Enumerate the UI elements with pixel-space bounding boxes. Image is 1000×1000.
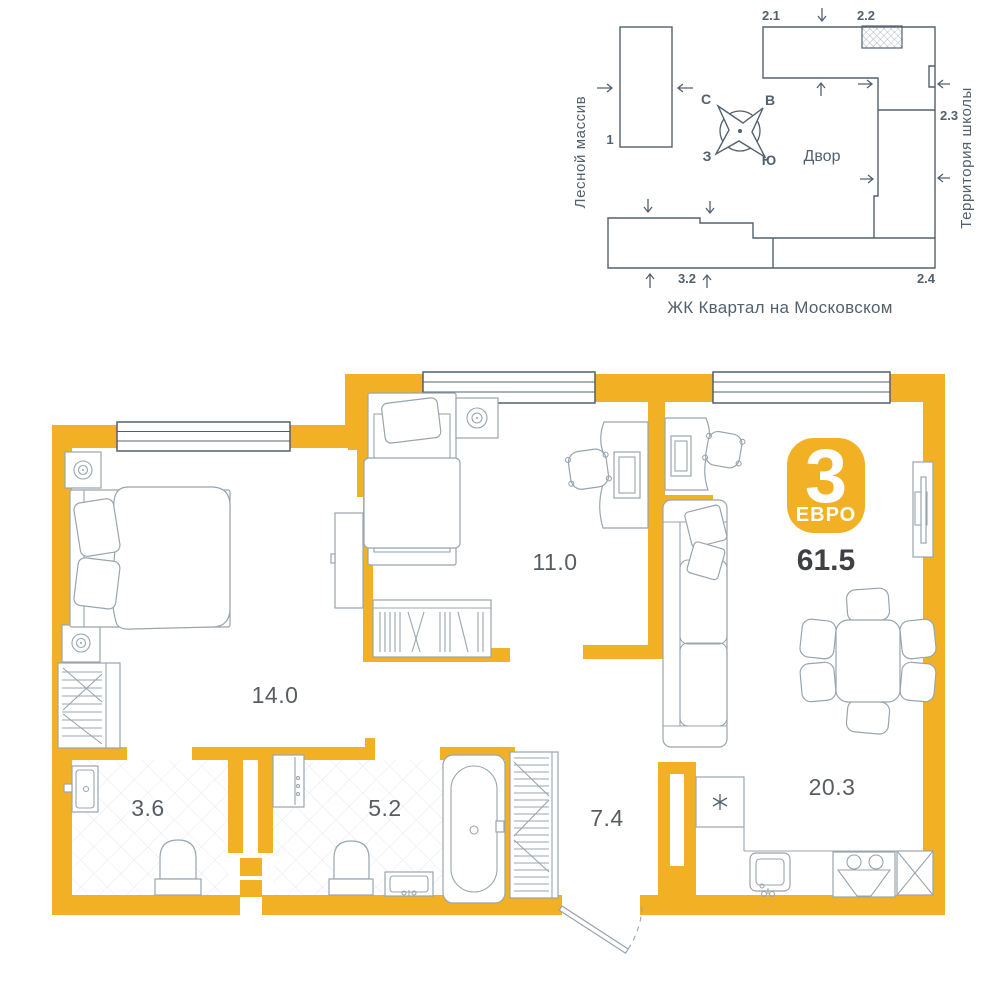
room-label-bathroom-large: 5.2 xyxy=(368,795,401,821)
building-label-2-4: 2.4 xyxy=(917,271,936,286)
school-label: Территория школы xyxy=(958,87,975,229)
pillow xyxy=(73,498,121,558)
courtyard-label: Двор xyxy=(804,148,841,165)
window-living xyxy=(713,372,890,403)
room-label-bedroom-second: 11.0 xyxy=(532,549,577,575)
toilet xyxy=(329,841,373,895)
windows xyxy=(117,372,890,451)
total-area-value: 61.5 xyxy=(797,544,855,577)
tv-unit xyxy=(913,462,933,557)
monitor xyxy=(614,452,640,498)
faucet xyxy=(64,784,72,792)
hallway-furniture xyxy=(510,752,642,953)
arrow-left-icon xyxy=(678,84,693,92)
building-label-3-2: 3.2 xyxy=(678,271,696,286)
apartment-plan: 14.0 11.0 3.6 5.2 7.4 20.3 3 ЕВРО 61.5 xyxy=(52,372,945,953)
pillow xyxy=(684,504,728,548)
arrow-up-icon xyxy=(703,275,711,288)
bedroom-second-furniture xyxy=(364,393,648,657)
floorplan-page: С В З Ю 1 2.1 2.2 2.3 2.4 3.2 Двор Лесно… xyxy=(0,0,1000,1000)
corner-cabinet xyxy=(897,851,933,895)
pillow xyxy=(381,397,441,444)
cabinet xyxy=(335,513,363,608)
site-building-3-2-2-4 xyxy=(608,218,935,268)
arrow-right-icon xyxy=(858,80,872,88)
chair xyxy=(799,662,836,703)
site-building-1 xyxy=(620,27,672,147)
bathtub-faucet xyxy=(496,821,504,832)
site-building-notch xyxy=(929,66,935,87)
arrow-left-icon xyxy=(938,174,950,182)
arrow-right-icon xyxy=(597,84,612,92)
kitchen-duct-column xyxy=(658,762,696,898)
tv-screen xyxy=(921,477,926,543)
site-building-2-1-2-2 xyxy=(763,27,935,110)
chair xyxy=(846,699,891,735)
building-label-2-1: 2.1 xyxy=(762,8,780,23)
window-bedroom xyxy=(117,422,290,451)
dresser xyxy=(373,600,491,657)
building-label-2-2: 2.2 xyxy=(857,8,875,23)
dining-table xyxy=(836,620,900,702)
arrow-down-icon xyxy=(644,199,652,212)
hall-wardrobe xyxy=(510,752,558,898)
site-building-2-3-left xyxy=(874,110,878,238)
compass-icon: С В З Ю xyxy=(701,91,776,168)
door-swing-arc xyxy=(628,906,642,949)
building-label-2-3: 2.3 xyxy=(940,108,958,123)
monitor xyxy=(671,436,691,476)
bedroom-main-furniture xyxy=(58,452,363,748)
entrance-door xyxy=(559,906,642,953)
forest-label: Лесной массив xyxy=(572,96,589,209)
apartment-type-badge: 3 ЕВРО 61.5 xyxy=(787,434,865,577)
compass-north: С xyxy=(701,91,711,107)
arrow-right-icon xyxy=(860,175,873,183)
cabinet-handle xyxy=(331,554,335,563)
chair xyxy=(899,662,936,703)
blanket xyxy=(364,458,460,548)
site-current-building-hatch xyxy=(862,26,902,48)
site-plan: С В З Ю 1 2.1 2.2 2.3 2.4 3.2 Двор Лесно… xyxy=(572,8,975,317)
pillow xyxy=(73,557,121,610)
dining-set xyxy=(799,588,937,735)
compass-east: В xyxy=(765,92,775,108)
arrow-left-icon xyxy=(938,80,950,88)
bathtub xyxy=(443,755,505,903)
room-label-kitchen-living: 20.3 xyxy=(809,774,856,800)
badge-type-label: ЕВРО xyxy=(796,504,856,526)
arrow-up-icon xyxy=(817,83,825,96)
sofa xyxy=(663,500,728,747)
chair xyxy=(846,588,890,623)
chair xyxy=(899,618,937,659)
wardrobe xyxy=(58,663,120,748)
washing-machine xyxy=(273,755,304,807)
duvet xyxy=(112,487,230,629)
complex-name: ЖК Квартал на Московском xyxy=(667,298,893,317)
chair xyxy=(799,618,837,659)
room-label-bathroom-small: 3.6 xyxy=(131,795,164,821)
arrow-down-icon xyxy=(706,201,714,213)
stove xyxy=(833,852,895,897)
room-label-bedroom-main: 14.0 xyxy=(252,682,299,708)
toilet xyxy=(155,840,201,895)
floorplan-canvas: С В З Ю 1 2.1 2.2 2.3 2.4 3.2 Двор Лесно… xyxy=(0,0,1000,1000)
arrow-up-icon xyxy=(646,274,654,288)
kitchen-sink xyxy=(750,853,790,897)
door-leaf xyxy=(559,906,628,953)
building-label-1: 1 xyxy=(606,132,613,147)
room-label-hallway: 7.4 xyxy=(590,805,623,831)
arrow-down-icon xyxy=(818,8,826,21)
sink xyxy=(385,872,433,896)
compass-west: З xyxy=(703,148,712,164)
compass-south: Ю xyxy=(762,152,776,168)
